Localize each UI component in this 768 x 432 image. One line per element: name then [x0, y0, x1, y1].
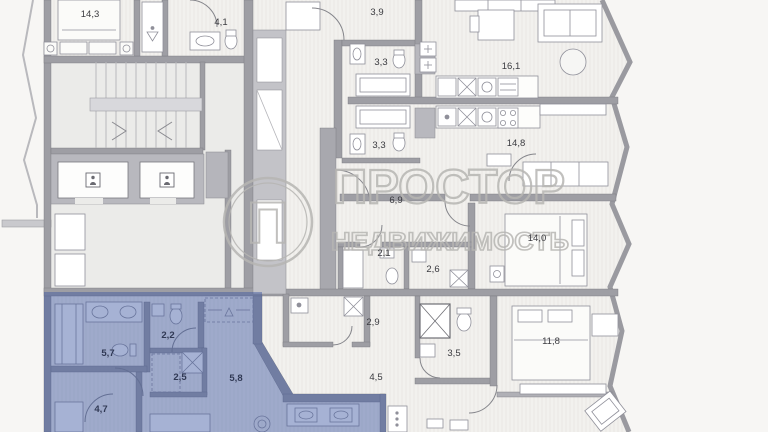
- sofa-icon: [538, 4, 602, 42]
- room-area-label: 2,2: [161, 330, 174, 341]
- floor-plan-image: П ПРОСТОР НЕДВИЖИМОСТЬ 14,3 4,1 3,9 3,3 …: [0, 0, 768, 432]
- shower-icon: [142, 2, 163, 52]
- room-area-label: 5,8: [229, 373, 242, 384]
- room-area-label: 16,1: [502, 61, 521, 72]
- room-area-label: 14,0: [528, 233, 547, 244]
- room-area-label: 4,5: [369, 372, 382, 383]
- room-area-label: 3,3: [374, 57, 387, 68]
- elevators: [51, 154, 204, 204]
- floor-plan-svg: П ПРОСТОР НЕДВИЖИМОСТЬ 14,3 4,1 3,9 3,3 …: [0, 0, 768, 432]
- elevator-person-icon: [86, 173, 100, 187]
- room-area-label: 3,3: [372, 140, 385, 151]
- kitchen-row: [436, 106, 540, 128]
- room-area-label: 3,9: [370, 7, 383, 18]
- stove-icon: [498, 108, 518, 128]
- room-area-label: 2,6: [426, 264, 439, 275]
- room-area-label: 4,7: [94, 404, 107, 415]
- room-area-label: 14,3: [81, 9, 100, 20]
- watermark-logo-letter: П: [247, 191, 289, 256]
- bathroom-fixtures: [190, 30, 237, 50]
- room-area-label: 5,7: [101, 348, 114, 359]
- room-area-label: 2,9: [366, 317, 379, 328]
- elevator-person-icon: [160, 173, 174, 187]
- room-area-label: 14,8: [507, 138, 526, 149]
- room-area-label: 2,1: [377, 248, 390, 259]
- room-area-label: 3,5: [447, 348, 460, 359]
- room-area-label: 2,5: [173, 372, 187, 383]
- bench-icon: [540, 104, 606, 115]
- room-area-label: 6,9: [389, 195, 402, 206]
- watermark-title: ПРОСТОР: [333, 161, 565, 214]
- chair-icon: [592, 314, 618, 336]
- left-facade: [2, 0, 51, 227]
- room-area-label: 11,8: [542, 336, 560, 347]
- round-table-icon: [560, 49, 586, 75]
- room-area-label: 4,1: [214, 17, 227, 28]
